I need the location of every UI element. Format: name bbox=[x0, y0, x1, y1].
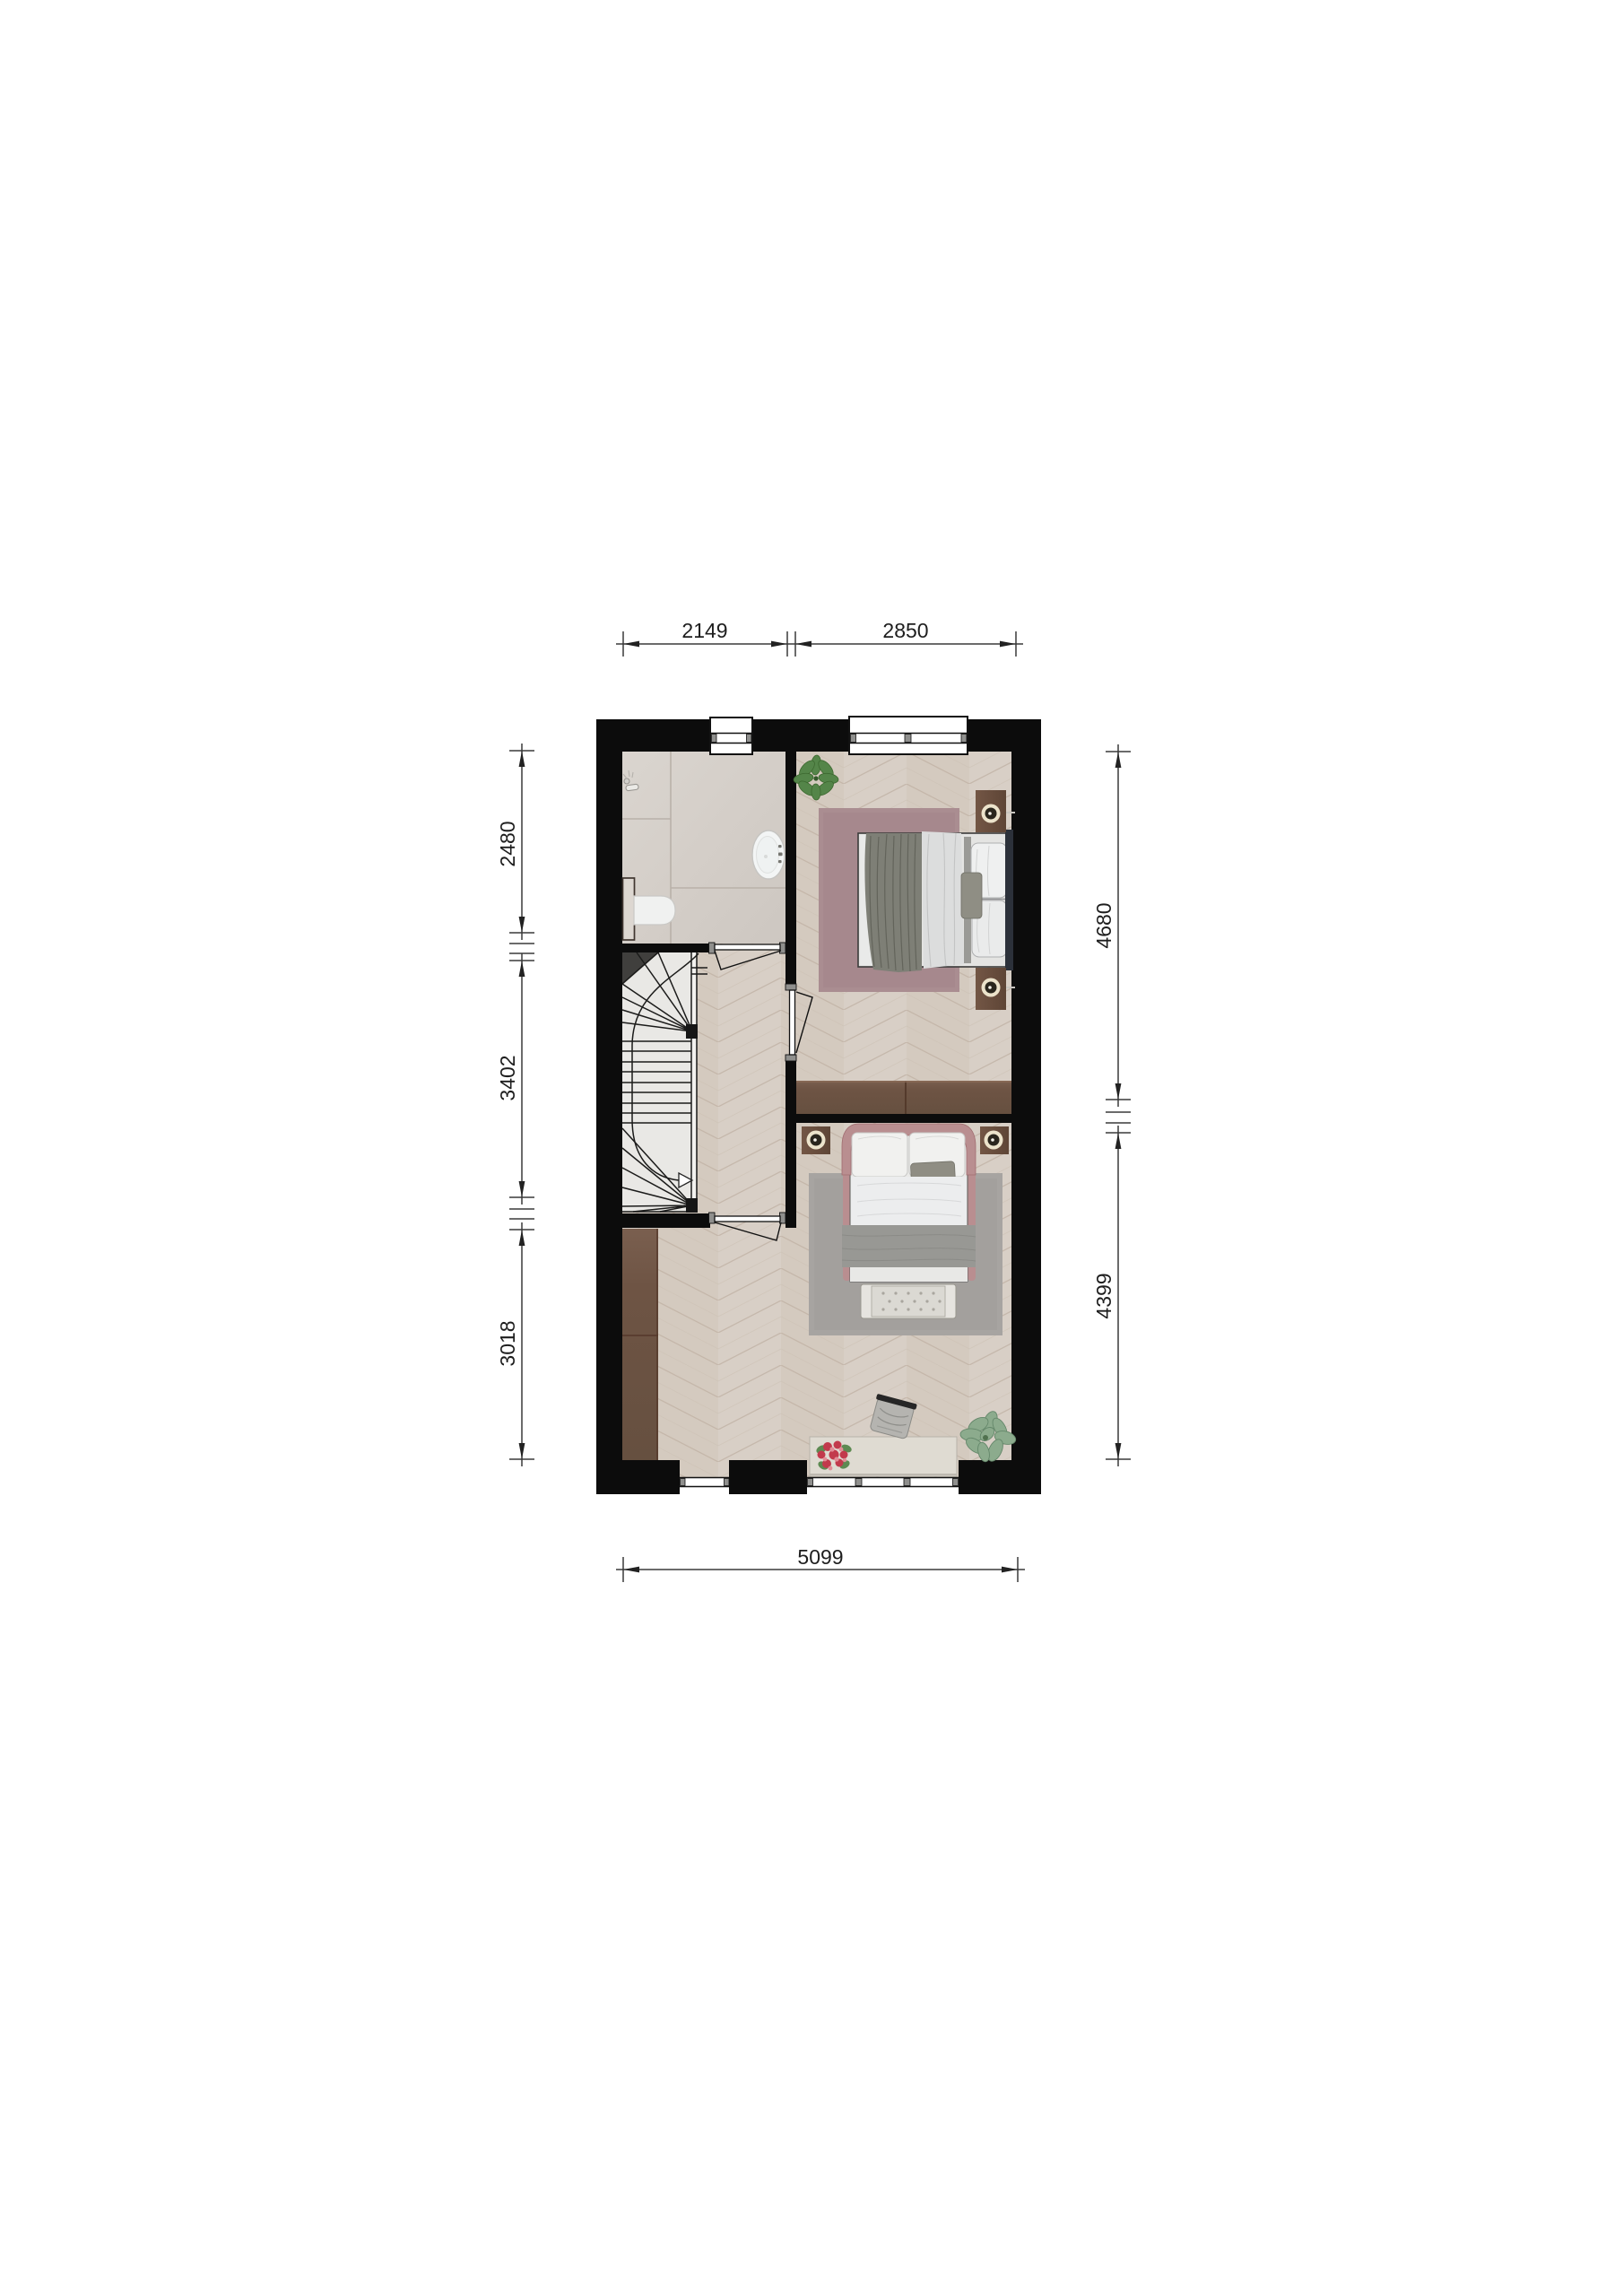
svg-text:4399: 4399 bbox=[1092, 1273, 1115, 1318]
svg-text:3402: 3402 bbox=[496, 1055, 519, 1100]
svg-text:2480: 2480 bbox=[496, 821, 519, 866]
svg-text:3018: 3018 bbox=[496, 1320, 519, 1366]
svg-text:4680: 4680 bbox=[1092, 902, 1115, 948]
svg-text:2850: 2850 bbox=[882, 619, 928, 642]
svg-text:5099: 5099 bbox=[797, 1545, 843, 1569]
svg-text:2149: 2149 bbox=[681, 619, 727, 642]
